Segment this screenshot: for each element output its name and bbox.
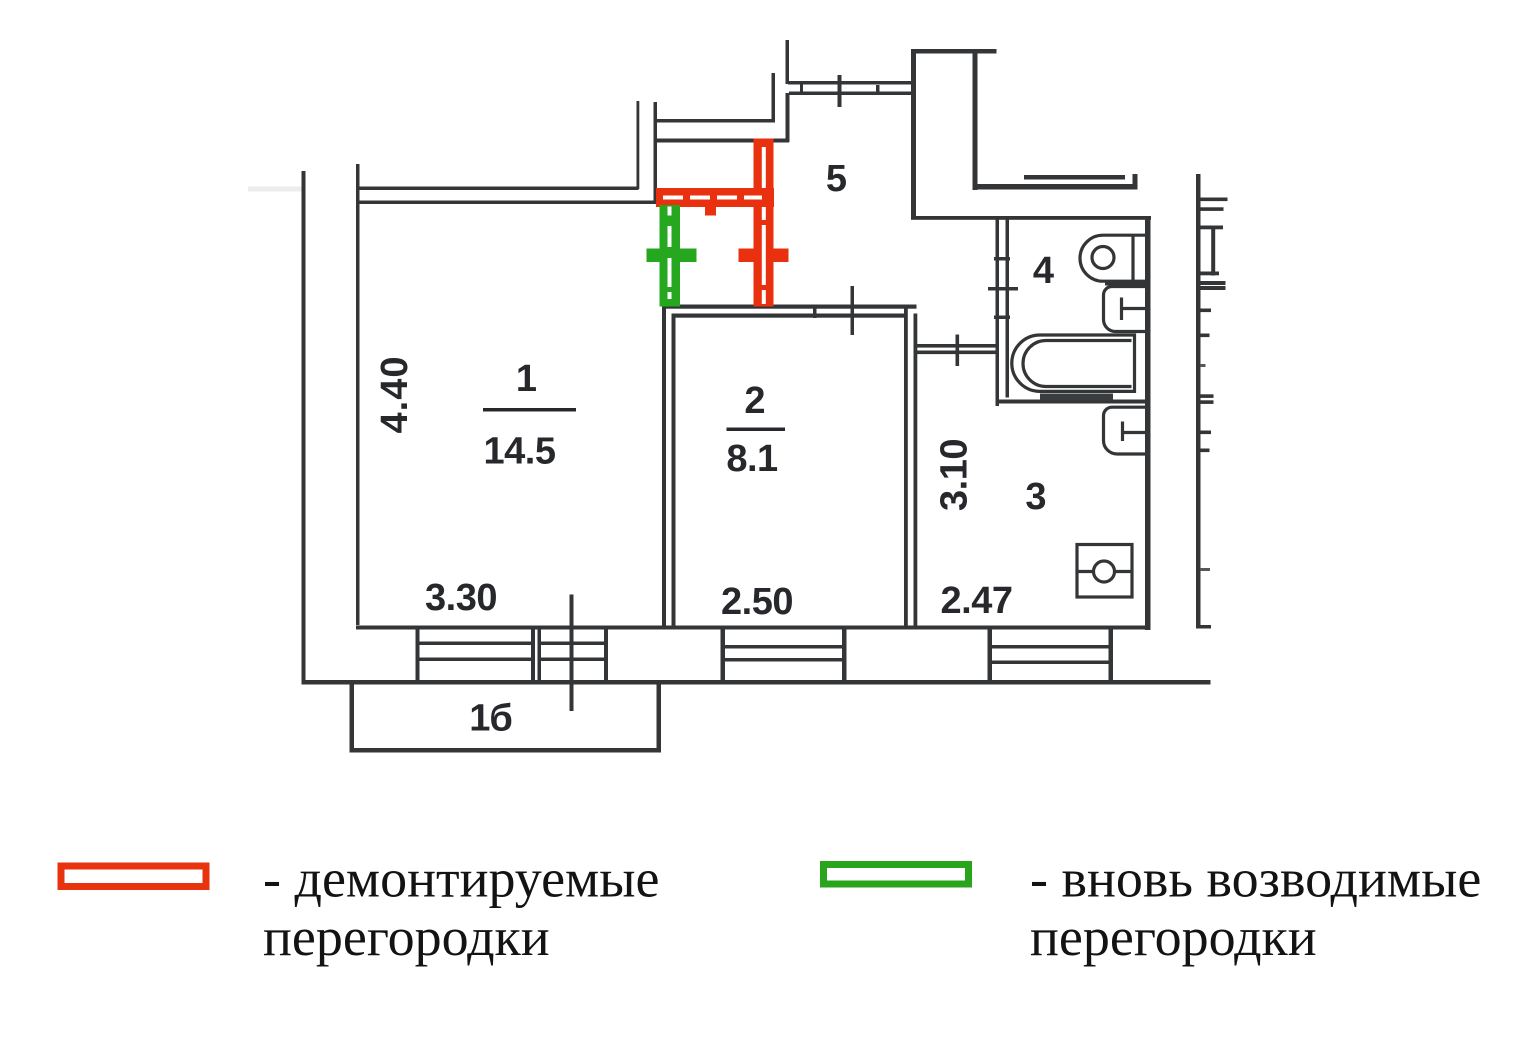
svg-text:- вновь возводимые: - вновь возводимые (1030, 849, 1481, 909)
svg-text:2.47: 2.47 (941, 580, 1013, 622)
svg-text:3.30: 3.30 (425, 577, 497, 619)
svg-text:перегородки: перегородки (263, 907, 550, 967)
svg-text:- демонтируемые: - демонтируемые (263, 849, 659, 909)
svg-text:3.10: 3.10 (934, 439, 976, 511)
svg-text:1: 1 (516, 358, 537, 400)
svg-text:2: 2 (744, 380, 765, 422)
svg-text:4.40: 4.40 (374, 356, 416, 434)
svg-text:2.50: 2.50 (721, 581, 793, 623)
svg-text:5: 5 (826, 158, 847, 200)
svg-text:14.5: 14.5 (484, 431, 556, 473)
svg-text:4: 4 (1033, 250, 1054, 292)
svg-text:перегородки: перегородки (1030, 907, 1317, 967)
svg-text:1б: 1б (469, 698, 512, 740)
svg-text:8.1: 8.1 (726, 438, 778, 480)
svg-text:3: 3 (1025, 476, 1046, 518)
